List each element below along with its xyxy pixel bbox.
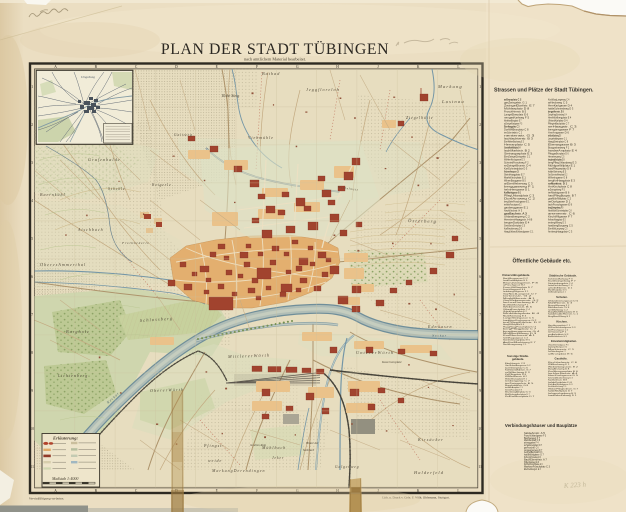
svg-text:hardhelmKelweg D 1: hardhelmKelweg D 1 [548, 394, 578, 397]
svg-text:F: F [256, 65, 258, 69]
svg-text:L: L [457, 65, 459, 69]
svg-text:HaagUhlandUhlandgasse C 1: HaagUhlandUhlandgasse C 1 [504, 230, 534, 234]
svg-text:L: L [457, 489, 459, 493]
svg-text:3: 3 [479, 161, 481, 165]
svg-text:Universitätsgebäude.: Universitätsgebäude. [502, 273, 531, 277]
svg-text:10: 10 [478, 427, 482, 431]
svg-text:arBrunplatz E 6: arBrunplatz E 6 [548, 352, 574, 355]
svg-text:Verbindungshäuser und Bauplätz: Verbindungshäuser und Bauplätze [505, 423, 578, 428]
svg-text:Strassen und Plätze der Stadt: Strassen und Plätze der Stadt Tübingen. [494, 88, 594, 94]
svg-text:1: 1 [479, 85, 481, 89]
svg-text:EberNeckbergstr. E 3: EberNeckbergstr. E 3 [524, 468, 541, 471]
svg-text:gebäude.: gebäude. [512, 357, 525, 361]
svg-text:K: K [417, 489, 420, 493]
svg-text:2: 2 [479, 123, 481, 127]
svg-text:Vervielfältigung verboten.: Vervielfältigung verboten. [29, 497, 64, 501]
svg-text:NeckBrungasweg C 1: NeckBrungasweg C 1 [503, 343, 527, 346]
svg-text:6: 6 [31, 275, 33, 279]
svg-text:A: A [54, 65, 57, 69]
svg-text:9: 9 [479, 389, 481, 393]
svg-text:AmMarkthelmstr. H 9: AmMarkthelmstr. H 9 [548, 335, 567, 338]
svg-text:Kirchen.: Kirchen. [556, 320, 567, 324]
svg-text:8: 8 [31, 351, 33, 355]
svg-text:6: 6 [479, 275, 481, 279]
svg-text:2: 2 [31, 123, 33, 127]
svg-text:Öffentliche Gebäude etc.: Öffentliche Gebäude etc. [513, 258, 573, 265]
svg-text:Dorfbergbergweg C 1: Dorfbergbergweg C 1 [548, 291, 566, 294]
svg-text:3: 3 [31, 161, 33, 165]
svg-text:5: 5 [31, 237, 33, 241]
svg-text:Städtische Gebäude.: Städtische Gebäude. [549, 274, 577, 278]
svg-text:A: A [54, 489, 57, 493]
svg-text:4: 4 [31, 199, 33, 203]
svg-text:1: 1 [31, 85, 33, 89]
svg-text:Einzelwürdigkeiten.: Einzelwürdigkeiten. [551, 339, 577, 343]
svg-text:11: 11 [30, 465, 34, 469]
svg-text:11: 11 [478, 465, 482, 469]
svg-text:4: 4 [479, 199, 481, 203]
svg-text:7: 7 [31, 313, 33, 317]
svg-text:5: 5 [479, 237, 481, 241]
svg-text:H: H [336, 65, 339, 69]
svg-text:Schulen.: Schulen. [556, 295, 568, 299]
svg-text:G: G [296, 65, 299, 69]
svg-text:KelKarlBrunplatz D 7: KelKarlBrunplatz D 7 [505, 395, 535, 398]
svg-text:Gasthöfe.: Gasthöfe. [555, 357, 568, 361]
svg-text:nach amtlichem Material bearbe: nach amtlichem Material bearbeitet. [244, 57, 306, 62]
svg-text:K: K [417, 65, 420, 69]
svg-text:8: 8 [479, 351, 481, 355]
svg-text:7: 7 [479, 313, 481, 317]
svg-text:BurgEberWilweg E 2: BurgEberWilweg E 2 [548, 315, 571, 318]
svg-text:9: 9 [31, 389, 33, 393]
svg-text:10: 10 [30, 427, 34, 431]
svg-text:D: D [175, 65, 178, 69]
svg-text:PLAN DER STADT TÜBINGEN: PLAN DER STADT TÜBINGEN [161, 40, 389, 58]
svg-text:AmbergHaagplatz C 3: AmbergHaagplatz C 3 [548, 230, 573, 234]
